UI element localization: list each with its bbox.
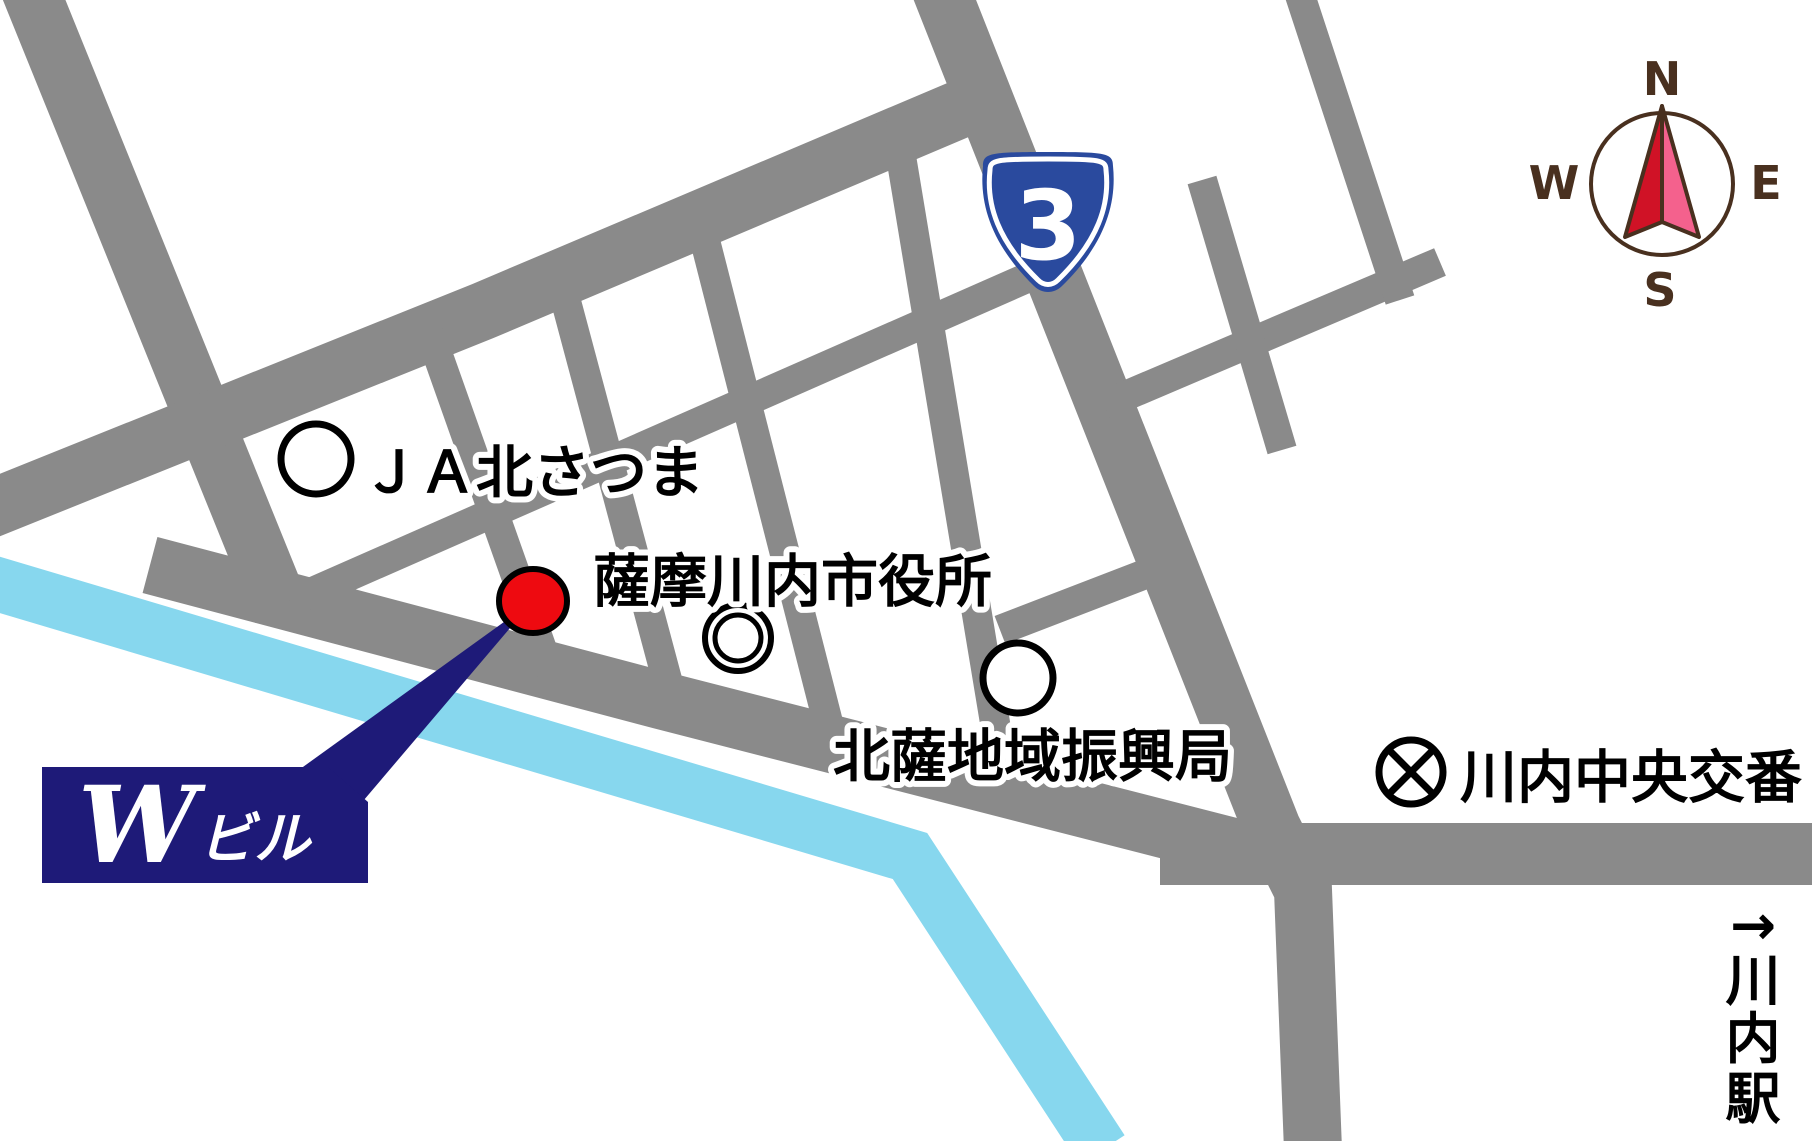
street-connector: [1000, 573, 1148, 630]
building-suffix: ビル: [198, 807, 313, 872]
ja-circle-marker: [281, 424, 351, 494]
route-shield-number: 3: [1015, 170, 1082, 282]
station-char-3: 駅: [1725, 1067, 1780, 1131]
station-char-2: 内: [1725, 1007, 1780, 1071]
label-hokusatsu: 北薩地域振興局: [833, 724, 1232, 790]
street-east-3: [1202, 180, 1282, 450]
label-koban: 川内中央交番: [1460, 745, 1802, 811]
route-3-shield: 3: [982, 152, 1113, 292]
label-ja: ＪＡ北さつま: [362, 440, 704, 506]
map-svg: W ビル 3 ＪＡ北さつま 薩摩川内市役所 北薩地域振興局 川内中央交番 → 川…: [0, 0, 1812, 1141]
koban-circle-x-marker: [1379, 740, 1443, 804]
target-marker-dot: [499, 569, 567, 633]
building-initial: W: [78, 762, 206, 887]
compass-label-north: N: [1643, 52, 1682, 106]
cityhall-inner-circle-marker: [715, 615, 761, 661]
station-direction-label: → 川 内 駅: [1725, 893, 1780, 1131]
road-topleft-diagonal: [20, 0, 282, 612]
compass-rose-icon: N W E S: [1529, 52, 1782, 317]
compass-label-west: W: [1529, 156, 1580, 210]
station-arrow-icon: →: [1730, 893, 1776, 957]
hokusatsu-circle-marker: [983, 643, 1053, 713]
map-canvas: W ビル 3 ＪＡ北さつま 薩摩川内市役所 北薩地域振興局 川内中央交番 → 川…: [0, 0, 1812, 1141]
label-cityhall: 薩摩川内市役所: [593, 549, 992, 615]
street-east-2: [1295, 0, 1400, 300]
compass-label-south: S: [1643, 263, 1676, 317]
compass-label-east: E: [1750, 156, 1781, 210]
station-char-1: 川: [1725, 949, 1780, 1013]
